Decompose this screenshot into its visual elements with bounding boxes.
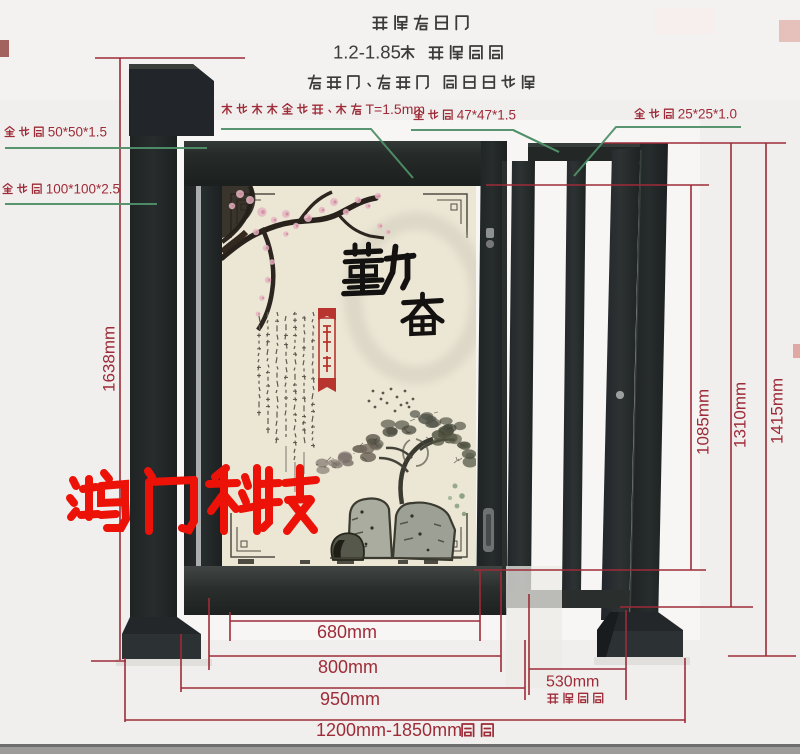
- svg-text:680mm: 680mm: [317, 622, 377, 642]
- svg-text:1200mm-1850mm: 1200mm-1850mm: [316, 720, 462, 740]
- svg-text:530mm: 530mm: [546, 673, 599, 690]
- svg-text:1310mm: 1310mm: [730, 382, 749, 448]
- svg-text:100*100*2.5: 100*100*2.5: [46, 181, 120, 196]
- svg-text:50*50*1.5: 50*50*1.5: [48, 124, 107, 139]
- svg-text:1638mm: 1638mm: [99, 326, 118, 392]
- svg-text:1415mm: 1415mm: [767, 378, 786, 444]
- svg-text:25*25*1.0: 25*25*1.0: [678, 106, 737, 121]
- svg-text:950mm: 950mm: [320, 689, 380, 709]
- svg-text:47*47*1.5: 47*47*1.5: [457, 107, 516, 122]
- svg-text:1085mm: 1085mm: [693, 389, 712, 455]
- svg-text:1.2-1.85: 1.2-1.85: [333, 42, 401, 63]
- svg-text:800mm: 800mm: [318, 657, 378, 677]
